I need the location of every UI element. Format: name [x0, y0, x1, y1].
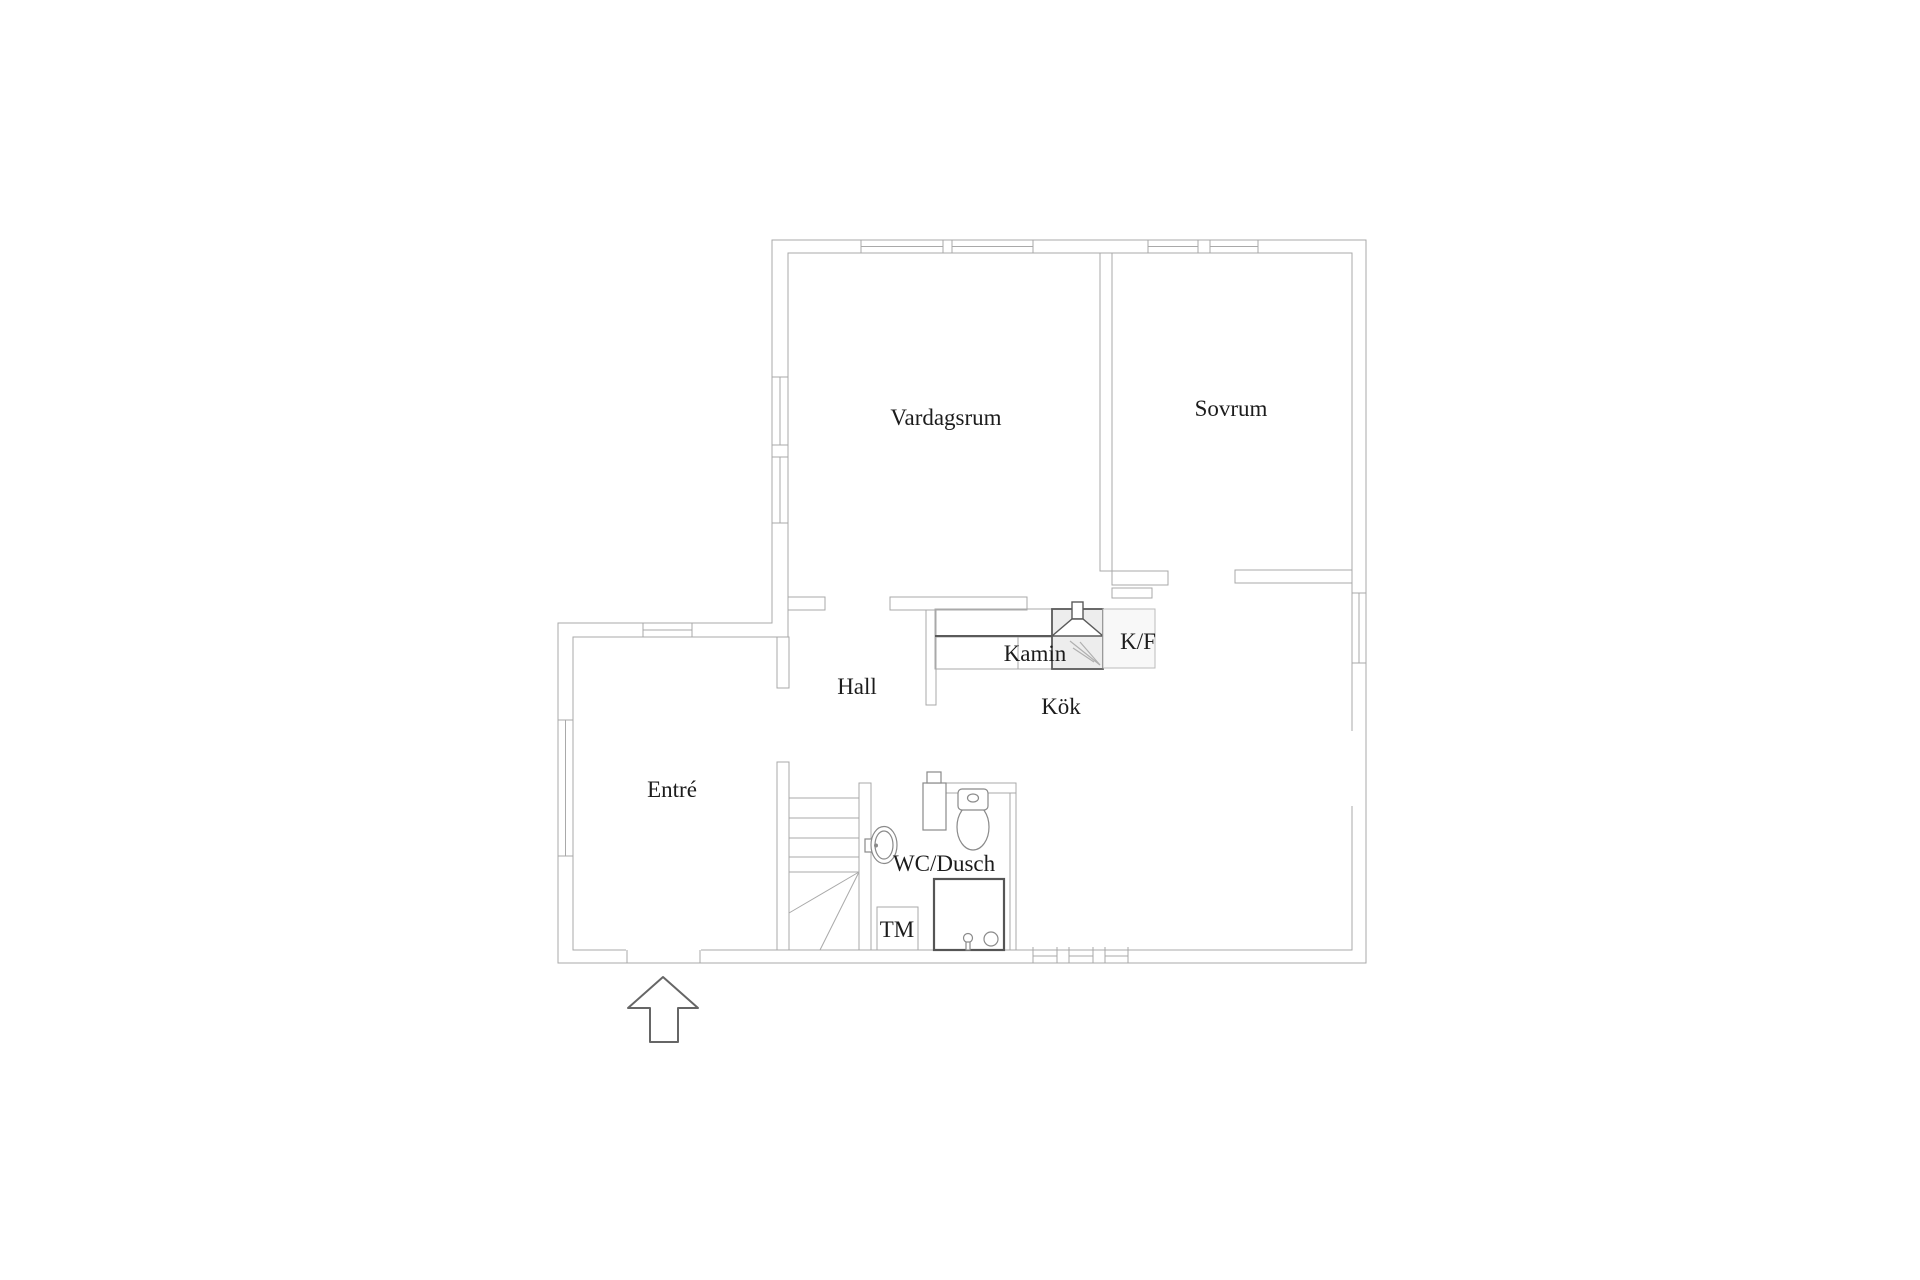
wall-bedroom-south [1235, 570, 1352, 583]
wall-living-south-west [788, 597, 825, 610]
fixture-label-kamin: Kamin [1004, 641, 1067, 666]
room-label-vardagsrum: Vardagsrum [890, 405, 1001, 430]
right-wall-opening [1347, 731, 1357, 806]
kitchen-counter-top [935, 609, 1052, 637]
wall-wc-east [1010, 793, 1016, 950]
entrance-arrow-icon [628, 977, 698, 1042]
wall-stairs-east [859, 783, 871, 950]
floor-plan-page: Vardagsrum Sovrum Hall Kök Entré WC/Dusc… [0, 0, 1920, 1280]
interior-walls [777, 253, 1352, 950]
stairs-icon [789, 798, 859, 950]
wall-kitchen-stub [1112, 588, 1152, 598]
duct-column [923, 772, 946, 830]
fixture-label-tm: TM [880, 917, 915, 942]
room-label-sovrum: Sovrum [1195, 396, 1268, 421]
shower-icon [934, 879, 1004, 950]
room-label-kok: Kök [1041, 694, 1081, 719]
room-label-hall: Hall [837, 674, 877, 699]
floor-plan: Vardagsrum Sovrum Hall Kök Entré WC/Dusc… [0, 0, 1920, 1280]
wall-living-bedroom-divider [1100, 253, 1112, 571]
entrance-door-opening [626, 945, 701, 953]
wall-stairs-west [777, 762, 789, 950]
room-label-wc-dusch: WC/Dusch [893, 851, 996, 876]
toilet-icon [957, 789, 989, 850]
wall-bedroom-door-stub [1112, 571, 1168, 585]
wall-entre-hall-stub [777, 637, 789, 688]
fixture-label-kf: K/F [1120, 629, 1156, 654]
wall-living-south-east [890, 597, 1027, 610]
room-label-entre: Entré [647, 777, 697, 802]
